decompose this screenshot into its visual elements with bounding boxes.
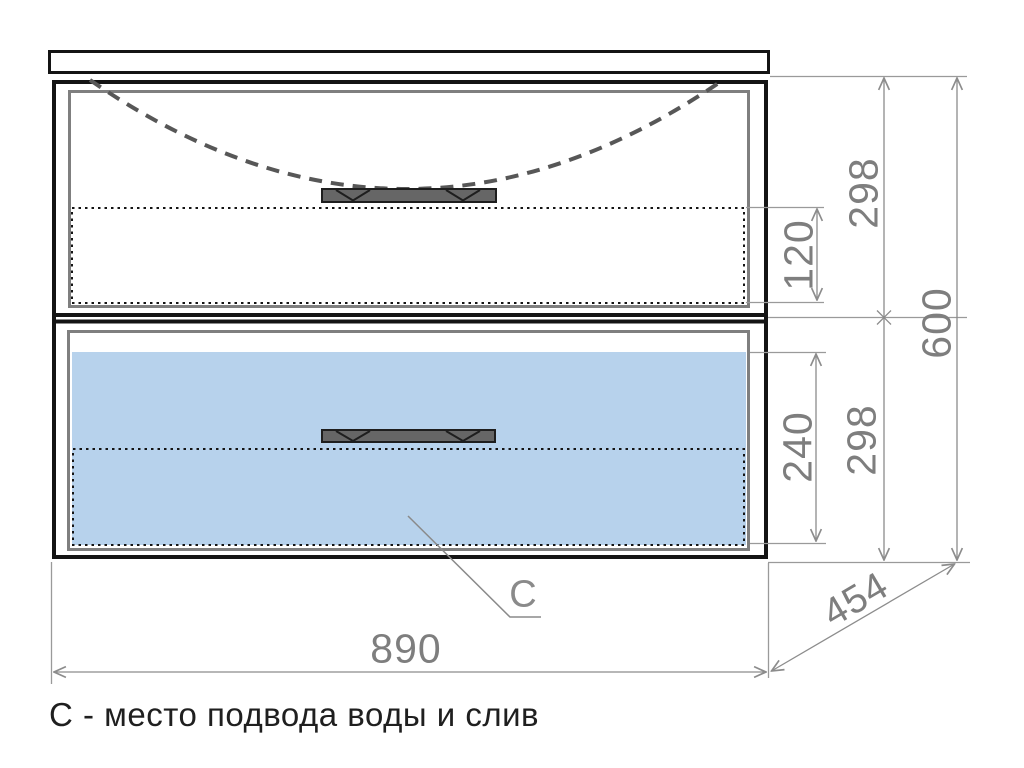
connection-point-label: С — [509, 574, 536, 617]
countertop — [50, 52, 769, 73]
dimension-label-top-drawer-inner: 120 — [776, 219, 823, 290]
caption-text: С - место подвода воды и слив — [49, 696, 539, 734]
dimension-label-overall-height: 600 — [914, 287, 961, 358]
dimension-label-bottom-drawer-height: 298 — [839, 404, 886, 475]
dimension-label-top-drawer-height: 298 — [841, 157, 888, 228]
dimension-label-overall-width: 890 — [370, 626, 441, 673]
drawing-svg — [0, 0, 1024, 768]
bottom-drawer-handle — [322, 430, 495, 442]
technical-drawing-canvas: 298 120 600 240 298 890 454 С С - место … — [0, 0, 1024, 768]
dimension-label-bottom-drawer-inner: 240 — [775, 411, 822, 482]
